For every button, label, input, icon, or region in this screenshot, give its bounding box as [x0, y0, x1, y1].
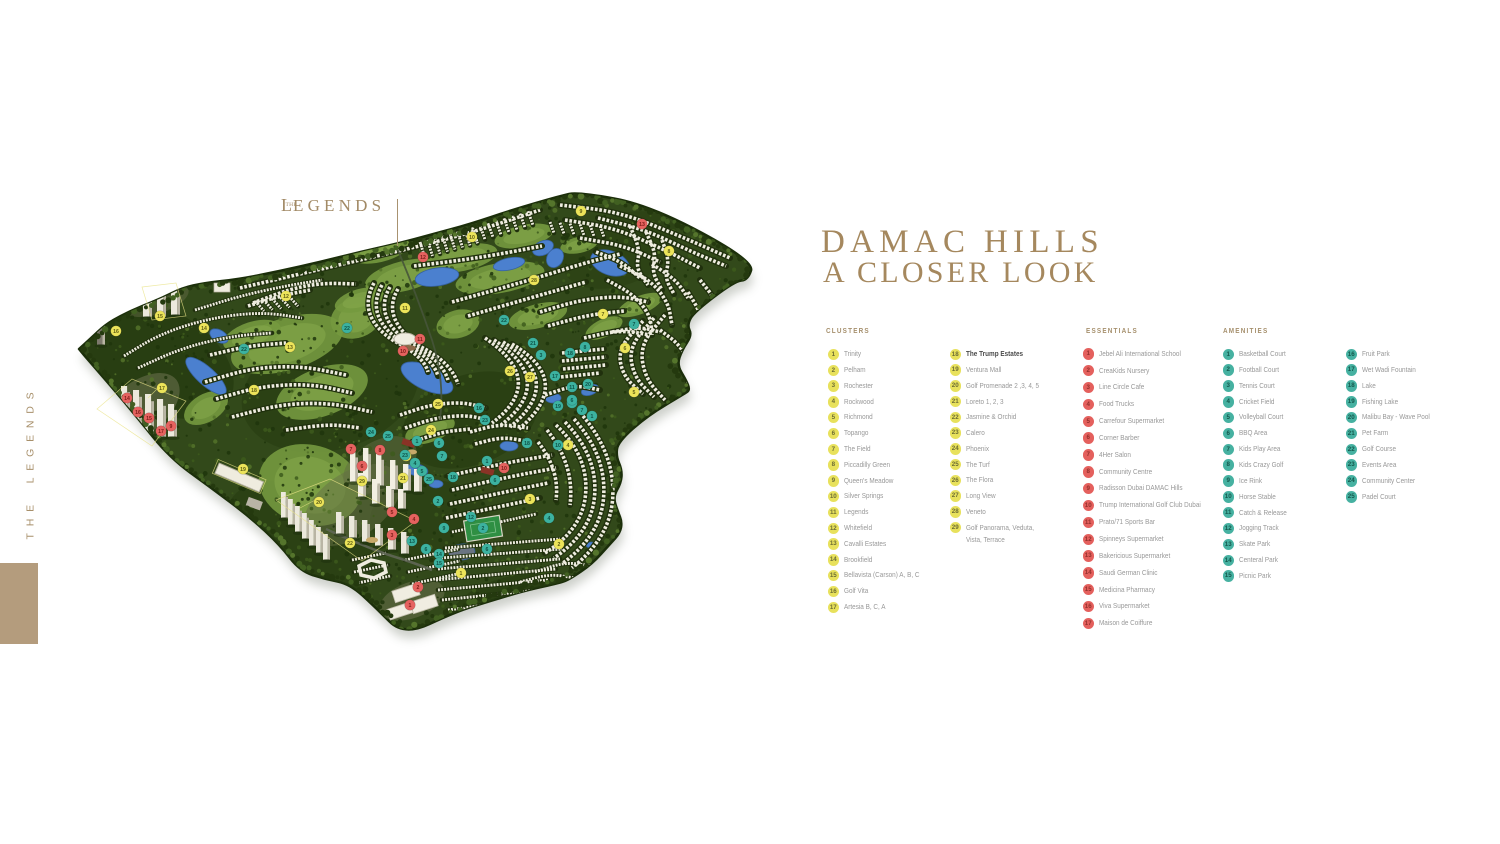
- svg-text:25: 25: [435, 402, 441, 408]
- svg-text:23: 23: [482, 418, 488, 424]
- svg-text:5: 5: [421, 469, 424, 475]
- svg-text:11: 11: [402, 306, 408, 312]
- svg-text:10: 10: [400, 349, 406, 355]
- svg-text:7: 7: [581, 408, 584, 414]
- svg-text:7: 7: [633, 322, 636, 328]
- svg-text:12: 12: [420, 255, 426, 261]
- svg-text:23: 23: [402, 453, 408, 459]
- svg-text:25: 25: [426, 477, 432, 483]
- svg-text:1: 1: [591, 414, 594, 420]
- svg-text:11: 11: [569, 385, 575, 391]
- svg-text:17: 17: [552, 374, 558, 380]
- svg-text:4: 4: [414, 461, 417, 467]
- svg-text:14: 14: [201, 326, 207, 332]
- svg-text:26: 26: [507, 369, 513, 375]
- svg-text:5: 5: [633, 390, 636, 396]
- svg-text:8: 8: [379, 448, 382, 454]
- svg-text:22: 22: [344, 326, 350, 332]
- svg-text:1: 1: [460, 571, 463, 577]
- svg-text:15: 15: [436, 561, 442, 567]
- svg-text:21: 21: [530, 341, 536, 347]
- svg-text:7: 7: [441, 454, 444, 460]
- svg-text:17: 17: [158, 429, 164, 435]
- svg-text:1: 1: [486, 459, 489, 465]
- svg-text:13: 13: [287, 345, 293, 351]
- svg-text:10: 10: [501, 466, 507, 472]
- svg-text:29: 29: [359, 479, 365, 485]
- svg-text:16: 16: [476, 406, 482, 412]
- svg-text:21: 21: [400, 476, 406, 482]
- svg-text:15: 15: [157, 314, 163, 320]
- svg-text:9: 9: [580, 209, 583, 215]
- svg-text:13: 13: [409, 539, 415, 545]
- svg-text:9: 9: [170, 424, 173, 430]
- svg-text:6: 6: [486, 547, 489, 553]
- svg-text:16: 16: [113, 329, 119, 335]
- svg-text:15: 15: [146, 416, 152, 422]
- svg-text:27: 27: [527, 375, 533, 381]
- svg-text:28: 28: [531, 278, 537, 284]
- svg-text:18: 18: [450, 475, 456, 481]
- svg-text:20: 20: [585, 382, 591, 388]
- svg-text:5: 5: [391, 510, 394, 516]
- svg-text:4: 4: [413, 517, 416, 523]
- svg-text:9: 9: [443, 526, 446, 532]
- svg-text:6: 6: [438, 441, 441, 447]
- svg-text:19: 19: [240, 467, 246, 473]
- svg-text:11: 11: [417, 337, 423, 343]
- svg-text:10: 10: [469, 235, 475, 241]
- svg-text:20: 20: [316, 500, 322, 506]
- svg-text:12: 12: [283, 294, 289, 300]
- svg-text:4: 4: [548, 516, 551, 522]
- svg-text:14: 14: [436, 552, 442, 558]
- svg-text:3: 3: [529, 497, 532, 503]
- svg-text:8: 8: [584, 345, 587, 351]
- svg-text:18: 18: [251, 388, 257, 394]
- svg-text:18: 18: [567, 351, 573, 357]
- svg-text:19: 19: [555, 404, 561, 410]
- svg-text:4: 4: [567, 443, 570, 449]
- svg-text:3: 3: [391, 533, 394, 539]
- svg-text:8: 8: [668, 249, 671, 255]
- svg-text:10: 10: [555, 443, 561, 449]
- svg-text:6: 6: [494, 478, 497, 484]
- svg-text:13: 13: [639, 222, 645, 228]
- svg-text:7: 7: [602, 312, 605, 318]
- svg-text:6: 6: [425, 547, 428, 553]
- svg-text:25: 25: [385, 434, 391, 440]
- svg-text:22: 22: [241, 347, 247, 353]
- svg-text:2: 2: [482, 526, 485, 532]
- svg-text:18: 18: [524, 441, 530, 447]
- svg-text:24: 24: [368, 430, 374, 436]
- svg-text:7: 7: [350, 447, 353, 453]
- svg-text:6: 6: [624, 346, 627, 352]
- svg-text:2: 2: [437, 499, 440, 505]
- svg-text:6: 6: [361, 464, 364, 470]
- svg-text:1: 1: [416, 439, 419, 445]
- svg-text:1: 1: [409, 603, 412, 609]
- svg-text:24: 24: [428, 428, 434, 434]
- svg-text:12: 12: [468, 515, 474, 521]
- svg-text:3: 3: [540, 353, 543, 359]
- svg-text:2: 2: [417, 585, 420, 591]
- svg-text:16: 16: [135, 410, 141, 416]
- svg-text:17: 17: [159, 386, 165, 392]
- svg-text:2: 2: [558, 542, 561, 548]
- svg-text:22: 22: [501, 318, 507, 324]
- svg-text:22: 22: [347, 541, 353, 547]
- svg-text:6: 6: [571, 398, 574, 404]
- svg-text:14: 14: [124, 396, 130, 402]
